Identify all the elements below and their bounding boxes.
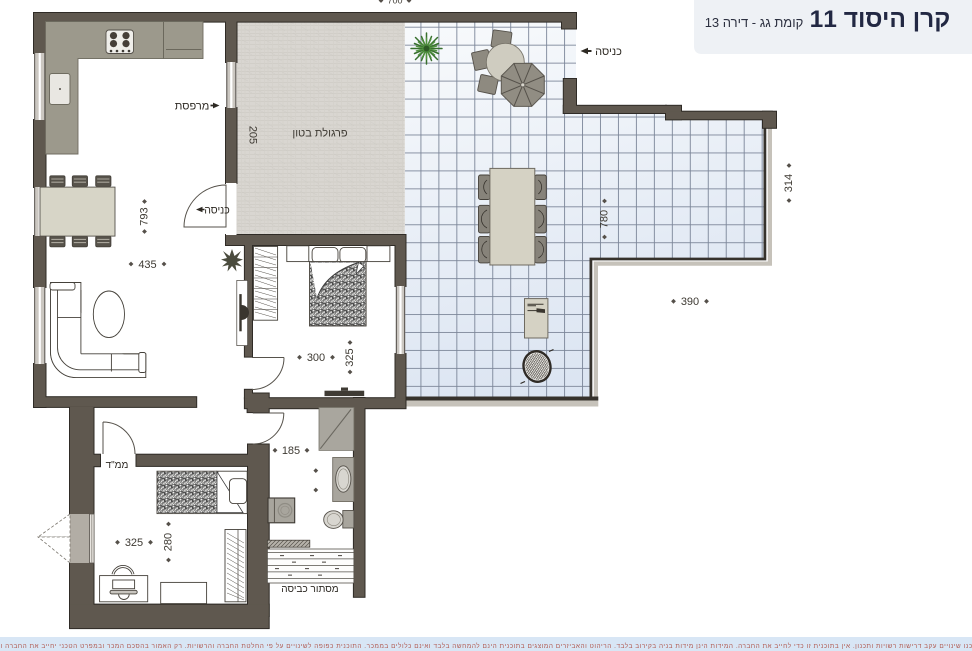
svg-text:300: 300 [307, 352, 325, 364]
svg-text:314: 314 [783, 174, 795, 192]
svg-text:מסתור כביסה: מסתור כביסה [281, 584, 339, 595]
svg-text:325: 325 [344, 348, 356, 366]
svg-text:קרן היסוד 11: קרן היסוד 11 [810, 6, 951, 33]
svg-text:390: 390 [681, 296, 699, 308]
svg-text:כניסה: כניסה [595, 46, 622, 58]
svg-text:325: 325 [125, 537, 143, 549]
svg-text:700: 700 [387, 0, 402, 6]
svg-text:185: 185 [282, 445, 300, 457]
svg-text:תוכנית זו היא להמחשה בלבד. יית: תוכנית זו היא להמחשה בלבד. ייתכנו שינויי… [0, 642, 972, 650]
svg-text:793: 793 [138, 207, 150, 225]
svg-text:780: 780 [598, 210, 610, 228]
svg-text:כניסה: כניסה [204, 205, 230, 217]
svg-text:280: 280 [162, 533, 174, 551]
svg-text:205: 205 [247, 126, 259, 144]
svg-text:קומת גג - דירה 13: קומת גג - דירה 13 [705, 15, 804, 30]
svg-text:ממ"ד: ממ"ד [106, 460, 129, 471]
svg-text:435: 435 [138, 259, 156, 271]
svg-text:פרגולת בטון: פרגולת בטון [292, 127, 348, 140]
svg-text:מרפסת: מרפסת [175, 101, 210, 113]
